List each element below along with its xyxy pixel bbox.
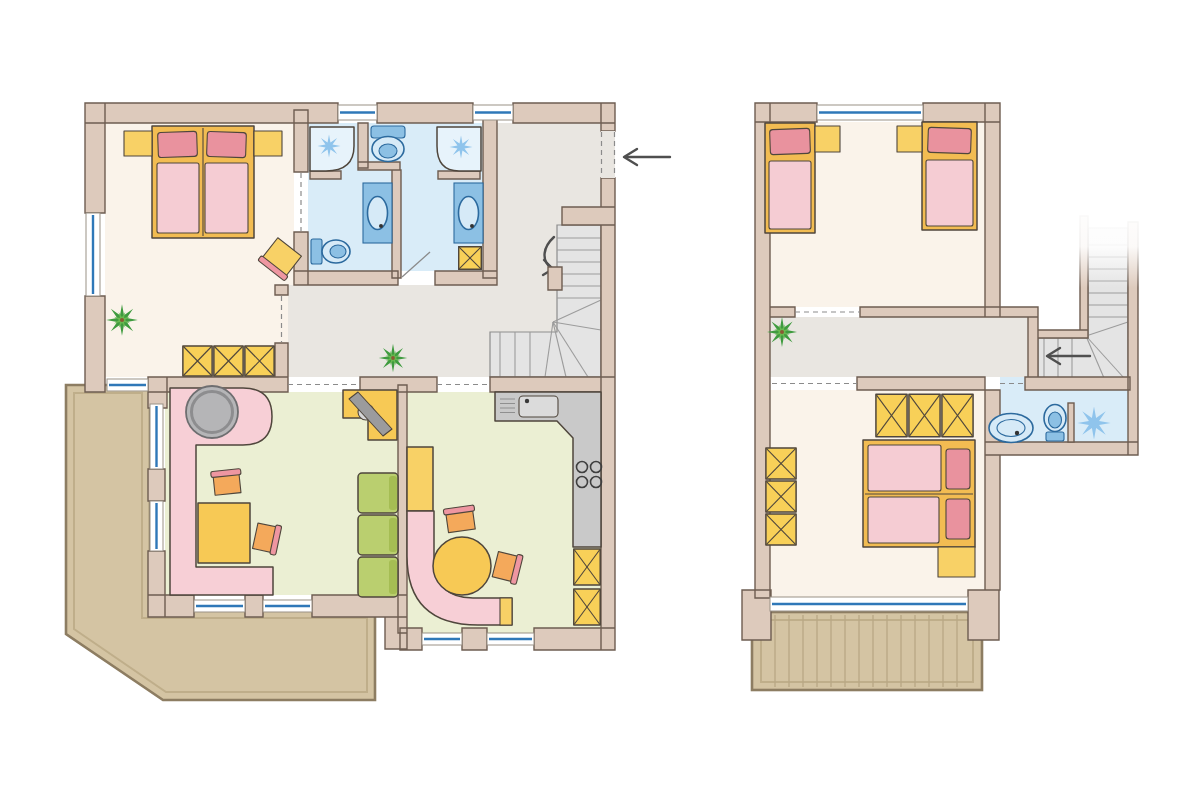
toilet — [371, 126, 405, 162]
wardrobe-box — [214, 346, 243, 376]
pillow — [158, 131, 198, 157]
round-side-table — [186, 386, 238, 438]
blanket — [205, 163, 248, 233]
storage-box — [574, 589, 600, 625]
toilet — [311, 239, 350, 264]
wardrobe-box — [766, 481, 796, 512]
floorplan-page — [0, 0, 1200, 800]
pedestal-sink — [989, 414, 1033, 443]
bench-end — [500, 598, 512, 625]
blanket — [926, 160, 973, 226]
bench-end — [407, 447, 433, 511]
wardrobe-box — [766, 514, 796, 545]
pillow — [928, 127, 972, 153]
blanket — [769, 161, 811, 229]
lower-floor-plan — [66, 103, 670, 700]
wardrobe-box — [245, 346, 274, 376]
nightstand — [897, 126, 922, 152]
entrance-opening — [601, 131, 615, 178]
pillow — [207, 131, 247, 157]
partition-wall — [1068, 403, 1074, 442]
pillow — [946, 499, 970, 539]
wardrobe-box — [909, 394, 940, 436]
modular-sofa — [358, 473, 398, 597]
shower-splash-icon — [318, 135, 341, 158]
wardrobe-box — [876, 394, 907, 436]
storage-box — [574, 549, 600, 585]
plant-icon — [767, 317, 797, 347]
dining-table — [433, 537, 491, 595]
balcony — [752, 612, 982, 690]
vanity-sink — [363, 183, 392, 243]
wardrobe-box — [766, 448, 796, 479]
room-hallway — [767, 317, 797, 347]
floorplan-drawing — [0, 0, 1200, 800]
wardrobe-box — [183, 346, 212, 376]
nightstand — [124, 131, 152, 156]
plant-icon — [379, 344, 408, 373]
nightstand — [938, 547, 975, 577]
floor-hallway — [770, 317, 1028, 377]
chair — [211, 469, 243, 496]
chair — [443, 505, 477, 533]
coffee-table — [198, 503, 250, 563]
stair-fade-overlay — [1072, 196, 1146, 288]
blanket — [868, 445, 941, 491]
pillow — [946, 449, 970, 489]
pillow — [770, 128, 811, 154]
shower-splash-icon — [1077, 406, 1110, 439]
nightstand — [254, 131, 282, 156]
plant-icon — [106, 304, 138, 336]
storage-box — [459, 247, 482, 270]
nightstand — [815, 126, 840, 152]
toilet — [1044, 405, 1066, 442]
wardrobe-box — [942, 394, 973, 436]
vanity-sink — [454, 183, 483, 243]
blanket — [868, 497, 939, 543]
shower-splash-icon — [450, 136, 473, 159]
blanket — [157, 163, 199, 233]
